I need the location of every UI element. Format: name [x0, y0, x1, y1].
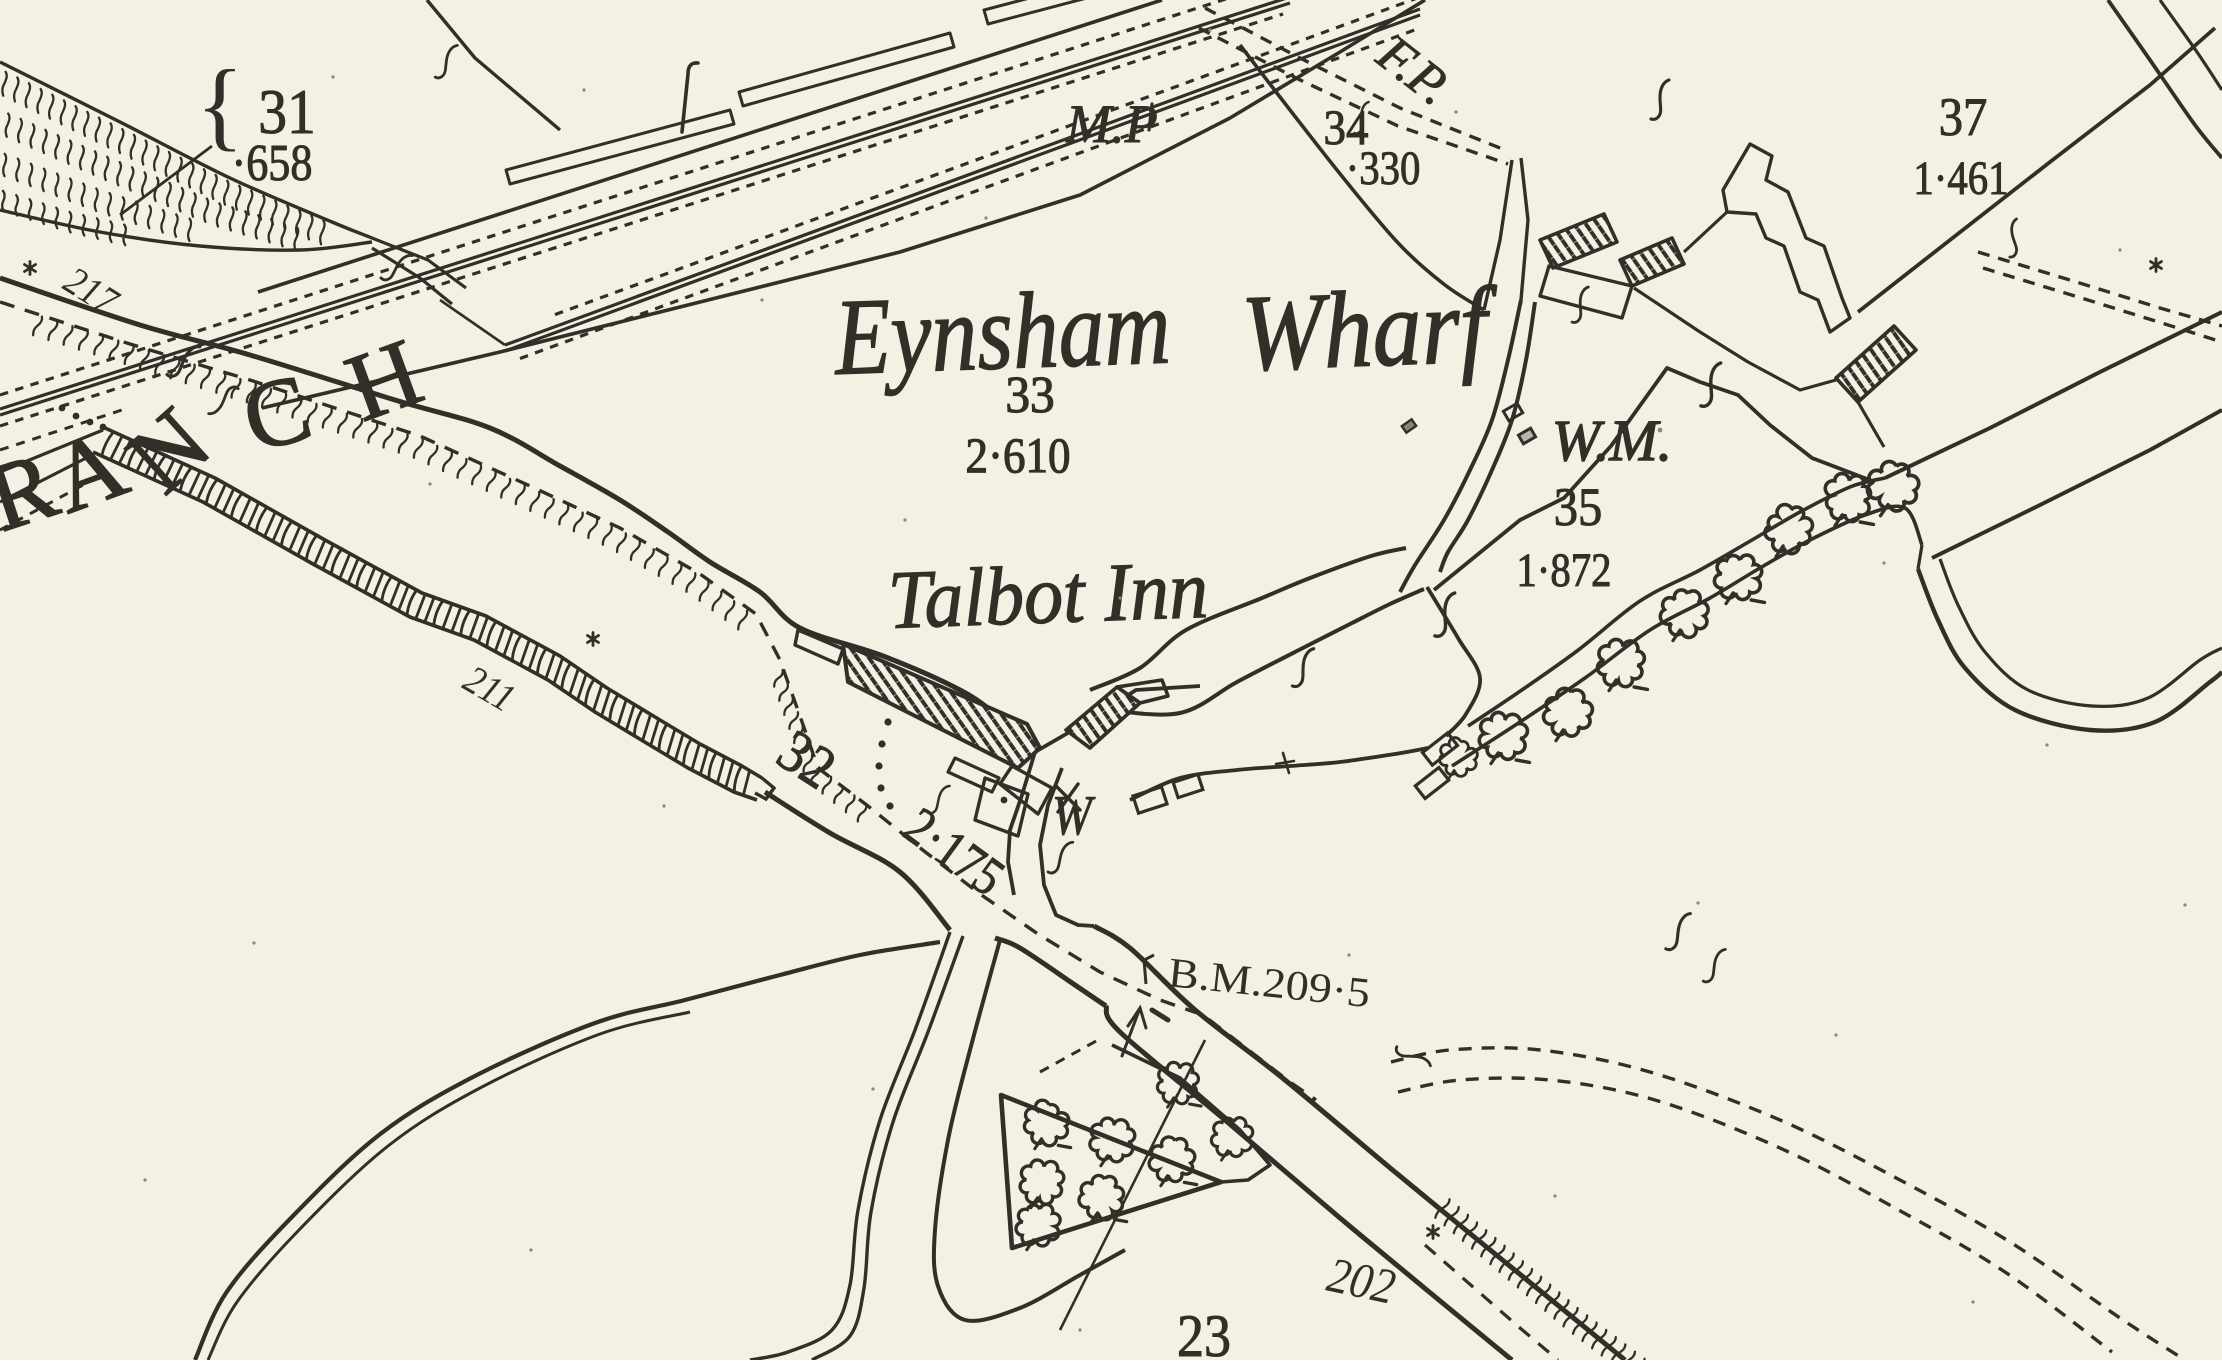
- svg-text:33: 33: [1005, 366, 1054, 423]
- svg-text:1·461: 1·461: [1913, 151, 2008, 205]
- svg-text:{: {: [196, 49, 244, 160]
- svg-text:W.M.: W.M.: [1552, 408, 1672, 473]
- svg-text:23: 23: [1177, 1303, 1231, 1360]
- svg-text:2·610: 2·610: [966, 429, 1071, 484]
- svg-text:Eynsham: Eynsham: [831, 265, 1172, 398]
- svg-text:M.P: M.P: [1065, 94, 1157, 154]
- svg-text:Talbot Inn: Talbot Inn: [886, 544, 1209, 647]
- svg-text:Wharf: Wharf: [1240, 265, 1501, 394]
- svg-text:1·872: 1·872: [1516, 543, 1611, 597]
- svg-text:·330: ·330: [1346, 141, 1421, 195]
- svg-text:37: 37: [1939, 88, 1988, 148]
- svg-text:W: W: [1052, 786, 1096, 847]
- svg-text:35: 35: [1554, 478, 1603, 538]
